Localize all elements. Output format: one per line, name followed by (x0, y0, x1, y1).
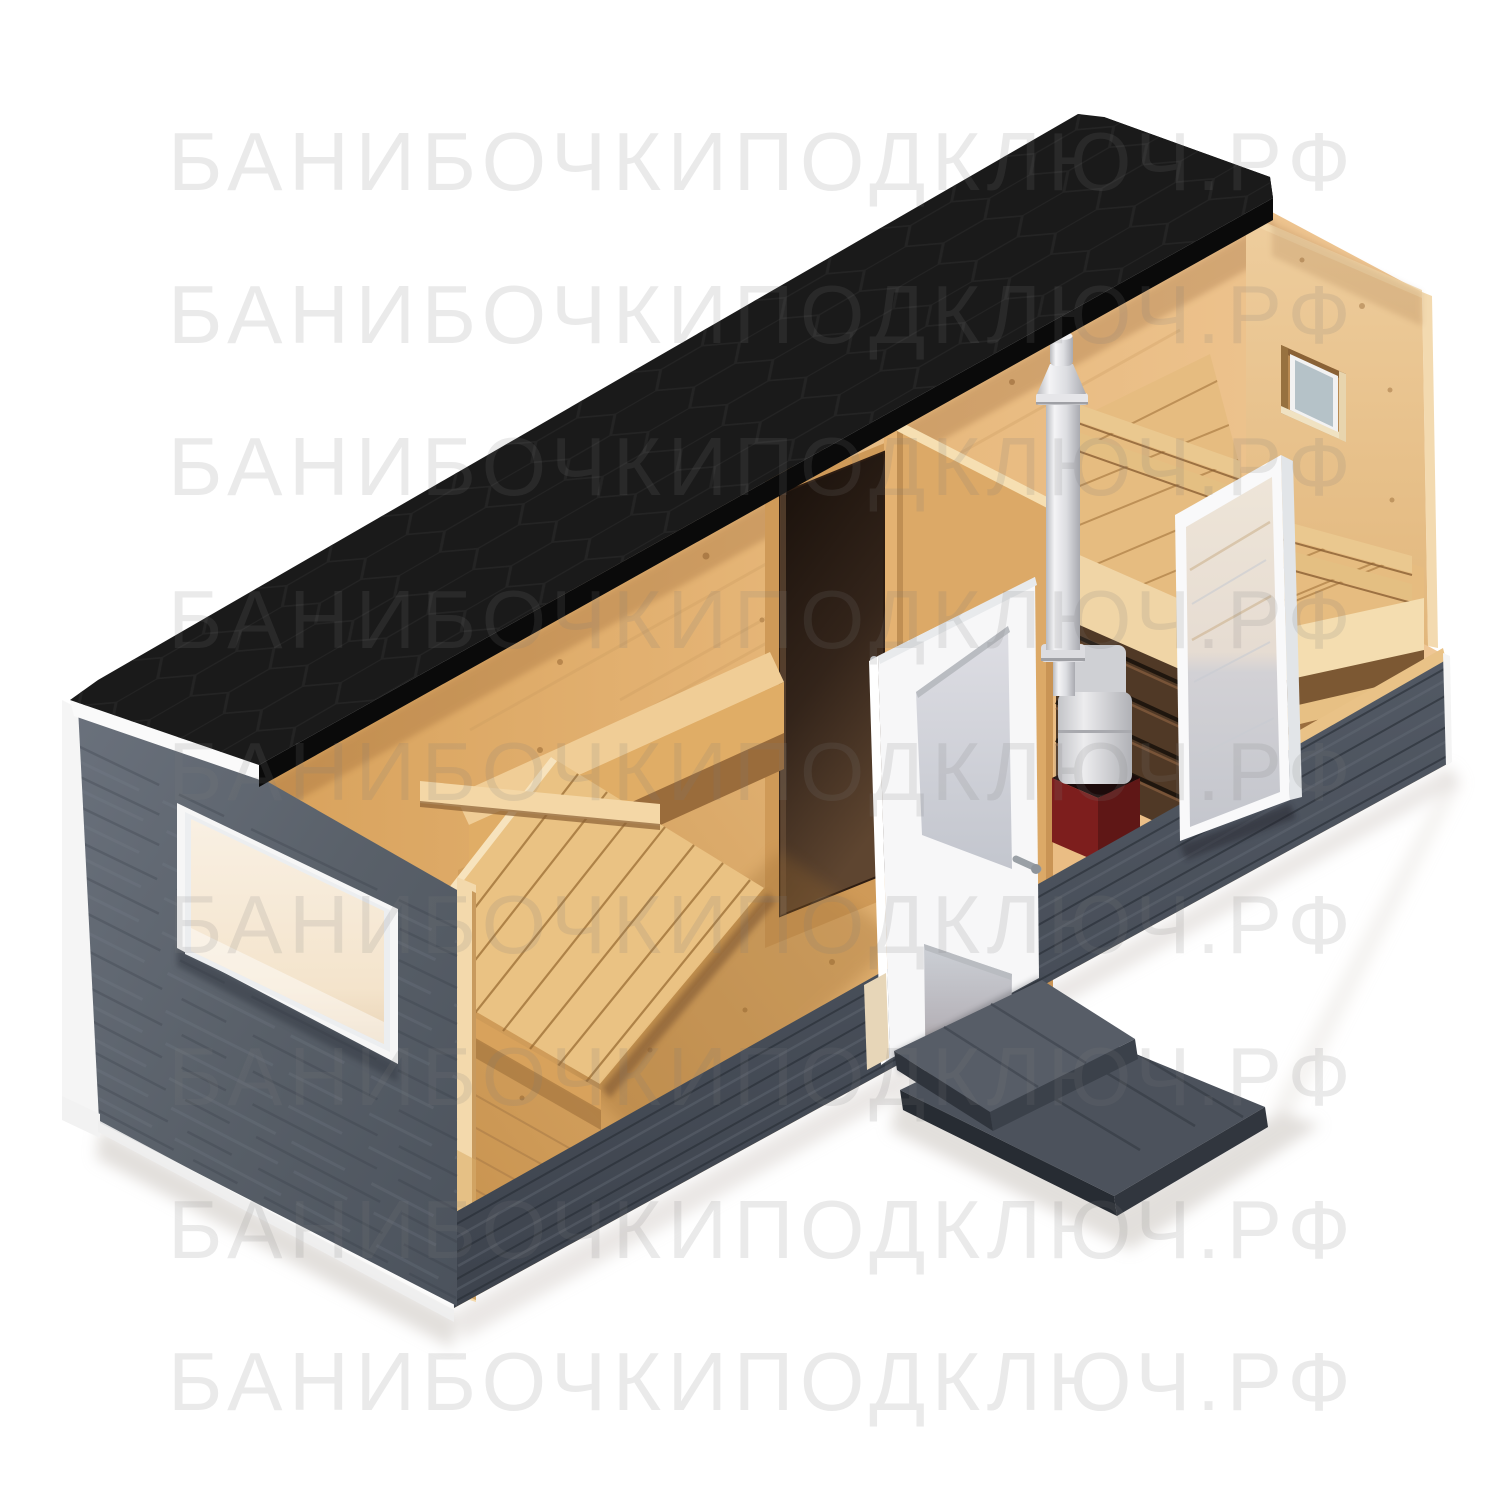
svg-text:БАНИБОЧКИПОДКЛЮЧ.РФ: БАНИБОЧКИПОДКЛЮЧ.РФ (168, 1183, 1357, 1276)
svg-text:БАНИБОЧКИПОДКЛЮЧ.РФ: БАНИБОЧКИПОДКЛЮЧ.РФ (168, 573, 1357, 666)
svg-text:БАНИБОЧКИПОДКЛЮЧ.РФ: БАНИБОЧКИПОДКЛЮЧ.РФ (168, 115, 1357, 208)
svg-text:БАНИБОЧКИПОДКЛЮЧ.РФ: БАНИБОЧКИПОДКЛЮЧ.РФ (168, 725, 1357, 818)
svg-text:БАНИБОЧКИПОДКЛЮЧ.РФ: БАНИБОЧКИПОДКЛЮЧ.РФ (168, 420, 1357, 513)
svg-text:БАНИБОЧКИПОДКЛЮЧ.РФ: БАНИБОЧКИПОДКЛЮЧ.РФ (168, 878, 1357, 971)
svg-text:БАНИБОЧКИПОДКЛЮЧ.РФ: БАНИБОЧКИПОДКЛЮЧ.РФ (168, 1335, 1357, 1428)
svg-text:БАНИБОЧКИПОДКЛЮЧ.РФ: БАНИБОЧКИПОДКЛЮЧ.РФ (168, 1030, 1357, 1123)
svg-text:БАНИБОЧКИПОДКЛЮЧ.РФ: БАНИБОЧКИПОДКЛЮЧ.РФ (168, 268, 1357, 361)
